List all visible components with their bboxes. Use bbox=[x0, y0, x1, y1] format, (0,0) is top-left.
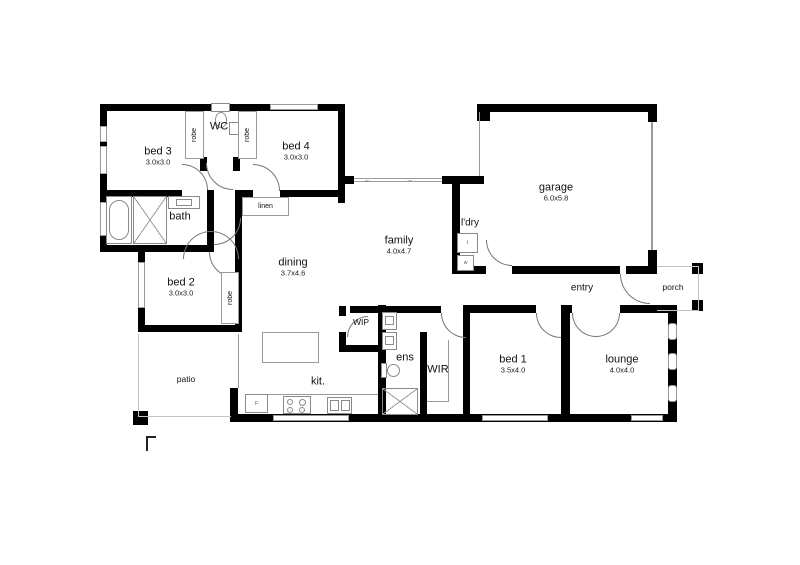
room-label-bed2: bed 2 3.0x3.0 bbox=[167, 276, 195, 297]
ens-basin bbox=[385, 336, 394, 345]
burner bbox=[299, 399, 306, 406]
sink-bowl bbox=[330, 400, 339, 411]
bath-basin bbox=[176, 199, 192, 206]
wall bbox=[477, 104, 657, 112]
linen-label: linen bbox=[258, 203, 273, 210]
room-label-dining: dining 3.7x4.6 bbox=[278, 256, 307, 277]
room-label-ens: ens bbox=[396, 352, 414, 365]
sink-bowl bbox=[341, 400, 350, 411]
linen-closet: linen bbox=[242, 197, 289, 216]
robe-label: robe bbox=[244, 128, 251, 142]
laundry-trough: t bbox=[457, 233, 478, 253]
patio-outline bbox=[138, 334, 139, 416]
laundry-washer-mark: w bbox=[464, 260, 468, 266]
burner bbox=[287, 399, 293, 405]
robe-closet: robe bbox=[185, 111, 204, 159]
robe-closet: robe bbox=[221, 272, 239, 324]
plan-marker-icon bbox=[146, 436, 156, 451]
window bbox=[100, 126, 107, 142]
fridge-mark: F bbox=[255, 401, 258, 407]
window bbox=[482, 415, 548, 421]
robe-label: robe bbox=[191, 128, 198, 142]
laundry-washer: w bbox=[457, 255, 474, 271]
wall bbox=[442, 176, 484, 184]
wall bbox=[233, 157, 240, 171]
wall bbox=[466, 305, 536, 313]
room-label-bath: bath bbox=[169, 211, 190, 224]
room-label-lounge: lounge 4.0x4.0 bbox=[605, 353, 638, 374]
garage-door-line bbox=[651, 122, 653, 250]
window bbox=[631, 415, 663, 421]
sink bbox=[327, 397, 352, 414]
room-label-bed4: bed 4 3.0x3.0 bbox=[282, 140, 310, 161]
door-arc-bed4 bbox=[253, 164, 280, 191]
window bbox=[273, 415, 349, 421]
room-label-patio: patio bbox=[177, 375, 195, 385]
door-arc-laundry bbox=[486, 240, 512, 266]
room-label-wip: WIP bbox=[353, 318, 369, 328]
ens-shower bbox=[382, 388, 418, 415]
room-label-porch: porch bbox=[662, 283, 683, 293]
ens-toilet-bowl bbox=[387, 364, 400, 377]
slider-arrow-right: → bbox=[406, 177, 413, 184]
door-arc-lounge-right bbox=[596, 313, 620, 337]
wall bbox=[338, 176, 354, 184]
toilet-cistern bbox=[211, 103, 230, 112]
burner bbox=[299, 407, 305, 413]
room-label-ldry: l'dry bbox=[461, 217, 479, 229]
porch-outline bbox=[657, 310, 699, 311]
kitchen-bench-line bbox=[268, 394, 378, 395]
wall bbox=[512, 266, 620, 274]
kitchen-island bbox=[262, 332, 319, 363]
door-arc-wc bbox=[206, 163, 233, 190]
floor-plan: linen robe robe robe t w F ← → be bbox=[0, 0, 800, 565]
porch-outline bbox=[698, 266, 699, 311]
wall bbox=[626, 266, 657, 274]
window bbox=[668, 323, 677, 340]
window bbox=[668, 353, 677, 370]
door-arc-hall bbox=[183, 231, 211, 259]
window bbox=[138, 262, 145, 308]
burner bbox=[287, 407, 293, 413]
fridge: F bbox=[245, 394, 268, 413]
wall bbox=[339, 306, 346, 316]
garage-slab-line bbox=[479, 112, 480, 176]
wall bbox=[338, 104, 345, 203]
slider-arrow-left: ← bbox=[364, 177, 371, 184]
room-label-wir: WIR bbox=[427, 364, 448, 377]
cooktop bbox=[283, 396, 311, 414]
room-label-bed1: bed 1 3.5x4.0 bbox=[499, 353, 527, 374]
patio-outline bbox=[138, 416, 231, 417]
robe-label: robe bbox=[227, 291, 234, 305]
patio-sliding-door-line bbox=[238, 334, 239, 388]
door-arc-wir bbox=[441, 313, 466, 338]
wardrobe-shelf-line bbox=[427, 401, 448, 402]
room-label-wc: WC bbox=[210, 121, 228, 134]
room-label-family: family 4.0x4.7 bbox=[385, 234, 414, 255]
window bbox=[270, 104, 318, 110]
room-label-kit: kit. bbox=[311, 376, 325, 389]
window bbox=[668, 385, 677, 402]
wall bbox=[138, 325, 242, 332]
wall bbox=[230, 388, 238, 422]
wall bbox=[648, 104, 657, 122]
ens-basin bbox=[385, 316, 394, 325]
shower bbox=[133, 196, 167, 244]
porch-outline bbox=[657, 266, 699, 267]
bathtub-inner bbox=[109, 200, 129, 240]
laundry-trough-mark: t bbox=[467, 240, 468, 246]
wall bbox=[280, 190, 345, 197]
door-arc-lounge-left bbox=[572, 313, 596, 337]
wall bbox=[561, 305, 570, 417]
wall bbox=[420, 332, 427, 415]
room-label-entry: entry bbox=[571, 282, 593, 294]
room-label-garage: garage 6.0x5.8 bbox=[539, 181, 573, 202]
door-arc-bed1 bbox=[536, 313, 561, 338]
window bbox=[100, 146, 107, 174]
wall bbox=[339, 345, 379, 352]
robe-closet: robe bbox=[238, 111, 257, 159]
patio-post bbox=[133, 411, 148, 425]
room-label-bed3: bed 3 3.0x3.0 bbox=[144, 145, 172, 166]
door-arc-front-entry bbox=[620, 274, 650, 304]
